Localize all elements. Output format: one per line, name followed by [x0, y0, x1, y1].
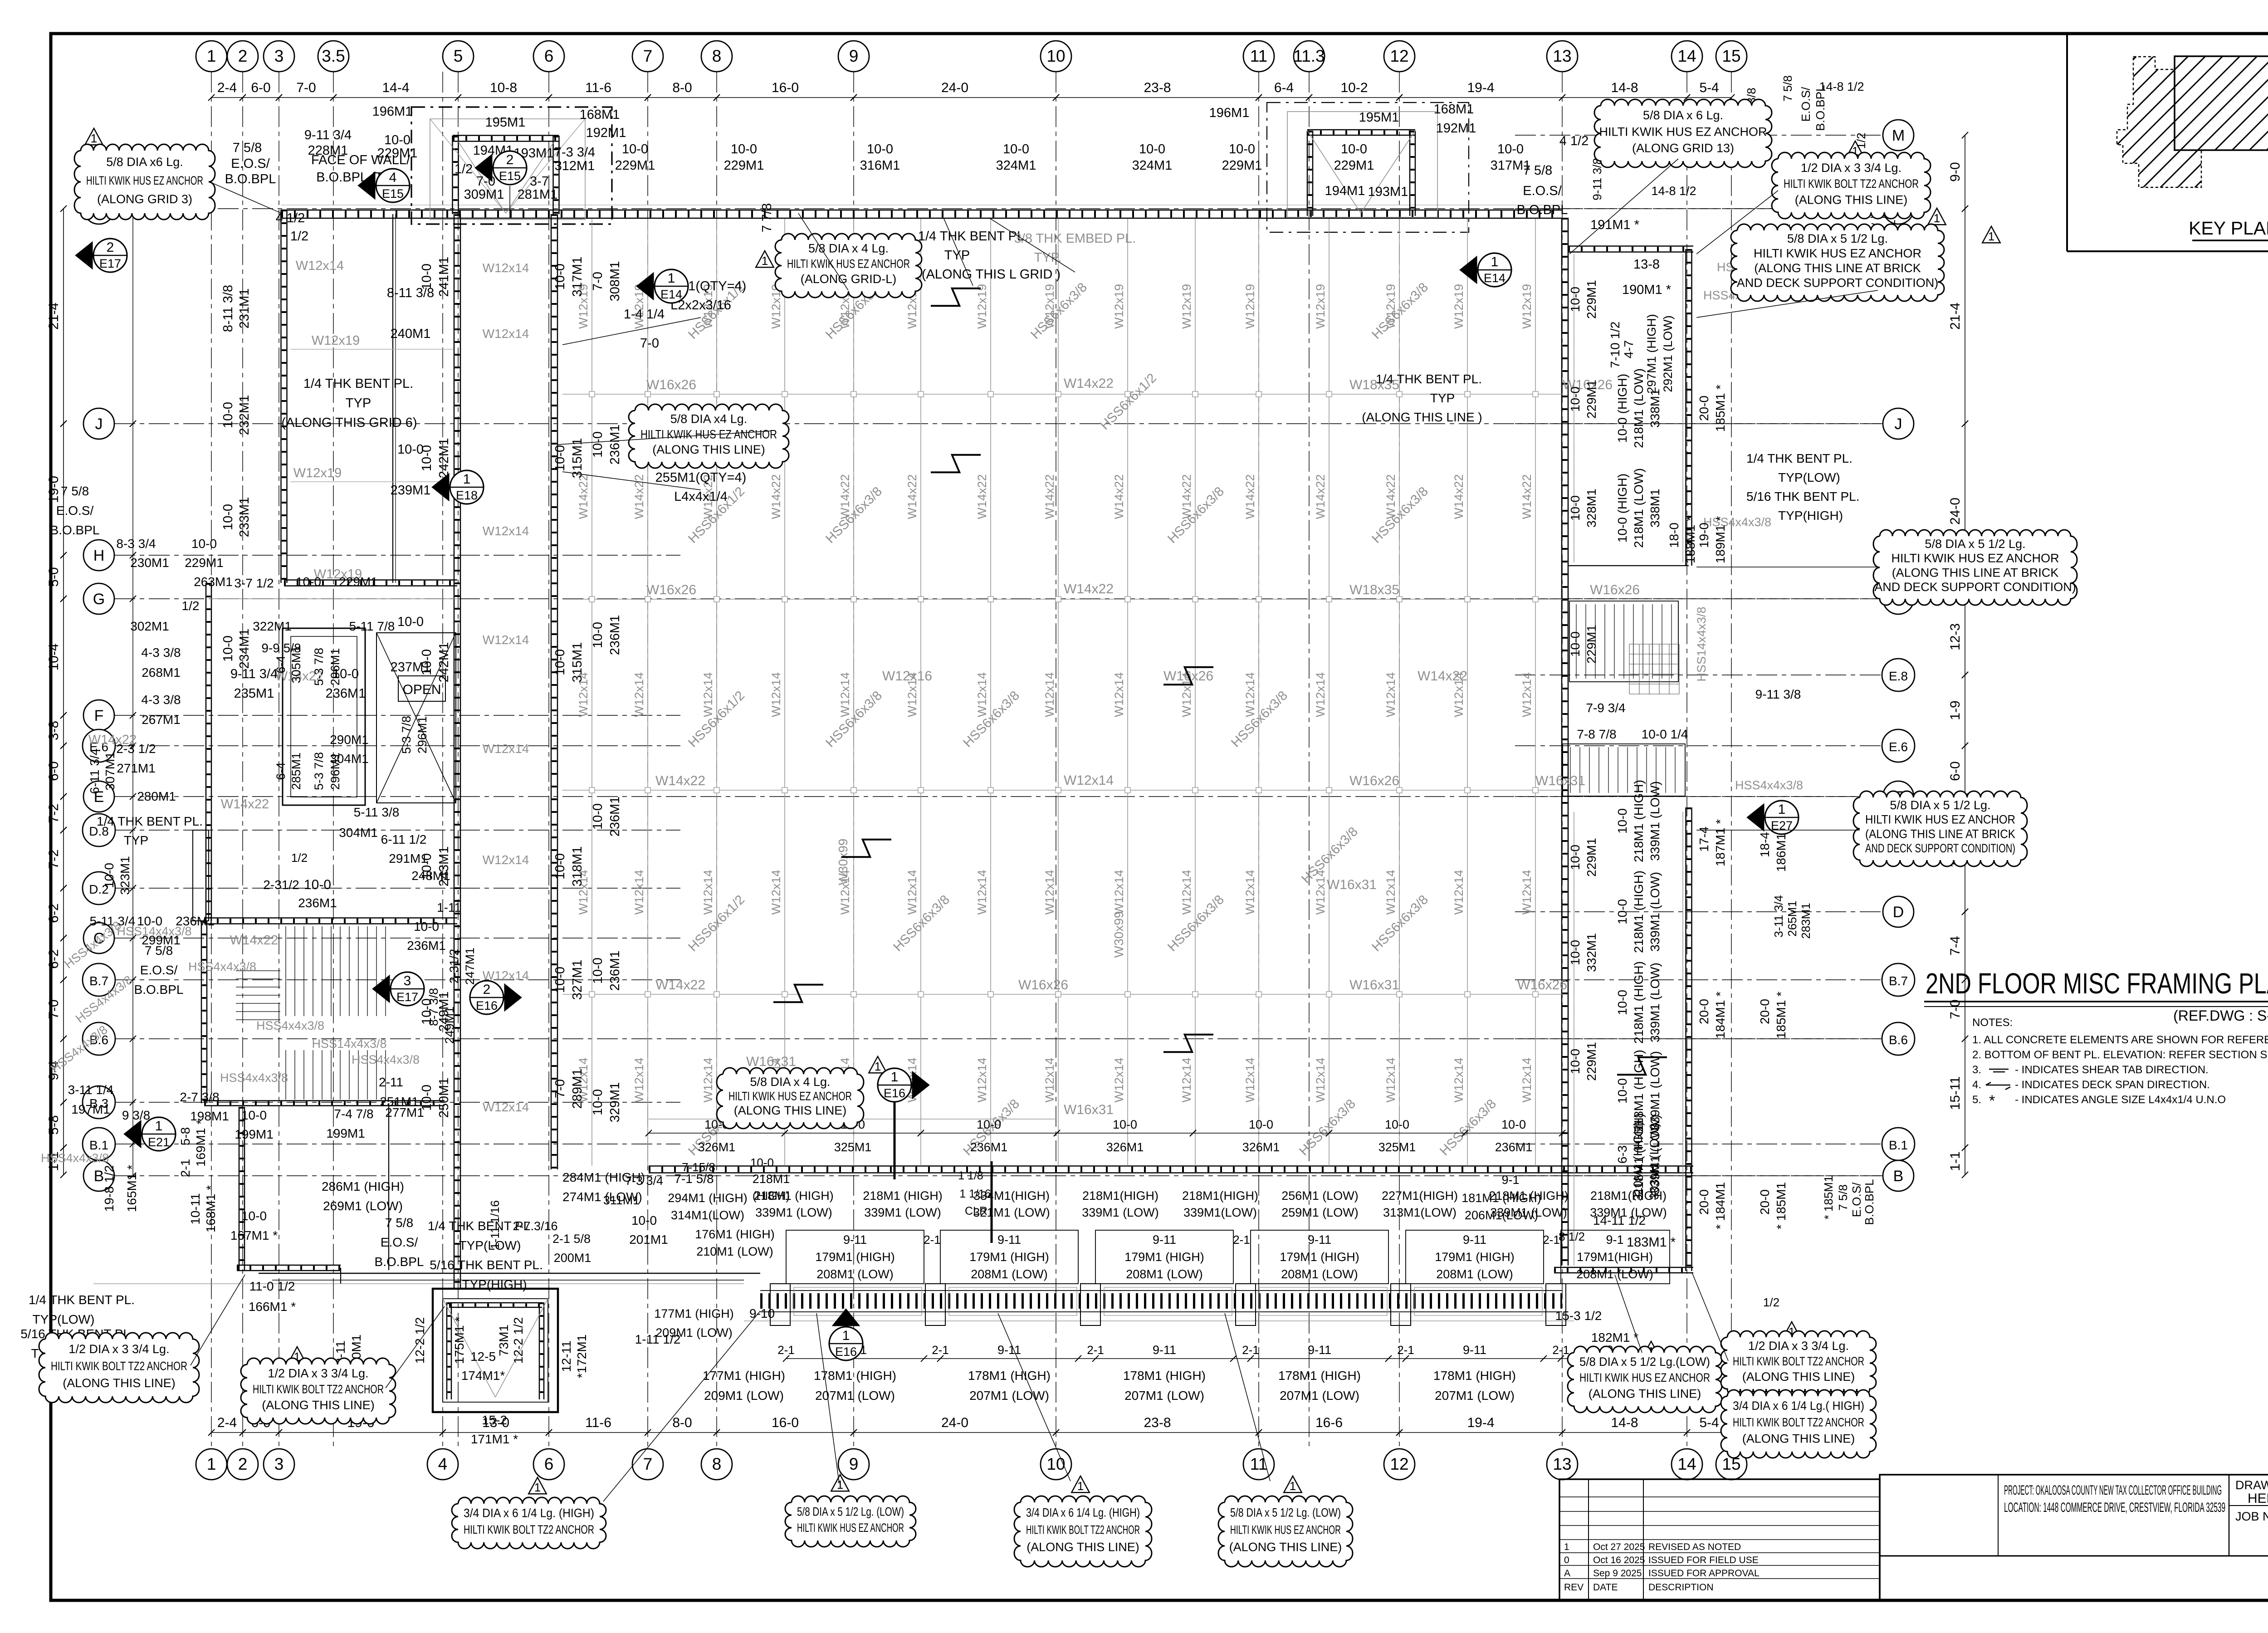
svg-text:2-1: 2-1 [932, 1343, 949, 1357]
svg-text:W12x14: W12x14 [483, 327, 529, 341]
svg-text:DESCRIPTION: DESCRIPTION [1648, 1582, 1714, 1593]
svg-text:1/2 DIA x 3 3/4 Lg.: 1/2 DIA x 3 3/4 Lg. [1801, 161, 1901, 175]
svg-text:236M1: 236M1 [608, 425, 622, 465]
svg-text:TYP.: TYP. [1034, 250, 1062, 265]
svg-text:236M1: 236M1 [1495, 1140, 1533, 1154]
svg-text:328M1: 328M1 [1584, 489, 1598, 528]
svg-text:10-0: 10-0 [191, 537, 217, 551]
svg-text:290M1: 290M1 [330, 733, 369, 747]
svg-text:5/16 THK BENT PL.: 5/16 THK BENT PL. [430, 1258, 543, 1272]
svg-text:2-1: 2-1 [1233, 1233, 1250, 1247]
svg-text:10-0: 10-0 [553, 445, 567, 471]
svg-text:177M1 (HIGH): 177M1 (HIGH) [654, 1307, 734, 1320]
svg-text:W14x22: W14x22 [769, 474, 783, 519]
svg-text:5/16 THK BENT PL.: 5/16 THK BENT PL. [1746, 489, 1860, 504]
svg-text:(ALONG THIS LINE AT BRICK: (ALONG THIS LINE AT BRICK [1892, 566, 2059, 579]
svg-text:*172M1: *172M1 [575, 1335, 589, 1379]
svg-text:W12x14: W12x14 [1180, 870, 1193, 914]
svg-text:HSS14x4x3/8: HSS14x4x3/8 [1695, 606, 1708, 681]
svg-text:20-0: 20-0 [1697, 999, 1711, 1024]
svg-text:1: 1 [891, 1070, 899, 1085]
svg-text:W16x31: W16x31 [1064, 1102, 1114, 1117]
svg-text:1: 1 [155, 1119, 163, 1134]
svg-text:207M1 (LOW): 207M1 (LOW) [1435, 1389, 1515, 1403]
svg-text:W12x14: W12x14 [1520, 870, 1534, 914]
svg-text:1/2: 1/2 [455, 162, 473, 176]
svg-text:13: 13 [1553, 47, 1571, 65]
svg-text:W14x22: W14x22 [221, 797, 269, 812]
svg-text:9-11 3/4: 9-11 3/4 [230, 667, 278, 681]
svg-text:W12x16: W12x16 [882, 669, 932, 684]
svg-text:TYP: TYP [346, 396, 371, 411]
svg-text:196M1: 196M1 [1209, 106, 1250, 120]
svg-text:HSS4x4x3/8: HSS4x4x3/8 [41, 1151, 109, 1165]
svg-text:7-0: 7-0 [591, 272, 605, 291]
svg-text:208M1 (LOW): 208M1 (LOW) [1281, 1267, 1358, 1281]
svg-text:10-0: 10-0 [1229, 142, 1255, 156]
svg-text:303M1 (LOW): 303M1 (LOW) [1647, 1123, 1661, 1200]
svg-text:259M1 (LOW): 259M1 (LOW) [1281, 1206, 1359, 1219]
svg-text:229M1: 229M1 [339, 575, 378, 589]
svg-text:B.7: B.7 [89, 974, 108, 988]
svg-text:10-0: 10-0 [622, 142, 648, 156]
svg-text:315M1: 315M1 [570, 438, 585, 479]
svg-text:218M1 (HIGH): 218M1 (HIGH) [1632, 870, 1646, 953]
svg-text:187M1 *: 187M1 * [1713, 819, 1727, 866]
svg-text:271M1: 271M1 [117, 761, 156, 775]
svg-text:10-0: 10-0 [750, 1156, 774, 1169]
svg-text:HSS4x4x3/8: HSS4x4x3/8 [1735, 778, 1803, 792]
svg-text:W12x19: W12x19 [312, 333, 360, 348]
svg-text:W12x14: W12x14 [1243, 870, 1257, 914]
svg-text:256M1 (LOW): 256M1 (LOW) [1281, 1189, 1359, 1203]
svg-text:175M1 *: 175M1 * [452, 1317, 466, 1364]
svg-text:192M1: 192M1 [1436, 121, 1476, 136]
svg-text:7-15/8: 7-15/8 [682, 1160, 715, 1174]
svg-text:7-2: 7-2 [46, 849, 61, 869]
svg-text:280M1: 280M1 [137, 789, 176, 803]
svg-text:W12x14: W12x14 [905, 870, 919, 914]
svg-text:242M1: 242M1 [437, 642, 451, 683]
svg-text:229M1: 229M1 [724, 158, 764, 173]
svg-text:B.O.BPL: B.O.BPL [1517, 203, 1568, 217]
svg-text:B.7: B.7 [1889, 974, 1908, 988]
svg-text:10-0: 10-0 [384, 133, 411, 147]
svg-text:15: 15 [1722, 47, 1740, 65]
svg-text:W16x26: W16x26 [1517, 978, 1567, 993]
svg-text:208M1 (LOW): 208M1 (LOW) [816, 1267, 894, 1281]
svg-text:10-0: 10-0 [977, 1118, 1001, 1131]
svg-text:6-2: 6-2 [46, 949, 61, 968]
svg-text:1-1: 1-1 [1948, 1151, 1963, 1171]
svg-text:10-0: 10-0 [1501, 1118, 1526, 1131]
svg-text:267M1: 267M1 [142, 713, 181, 727]
svg-text:232M1: 232M1 [237, 395, 252, 435]
svg-text:7-4 7/8: 7-4 7/8 [334, 1107, 373, 1121]
svg-text:171M1 *: 171M1 * [471, 1432, 518, 1446]
svg-text:179M1(HIGH): 179M1(HIGH) [1577, 1250, 1653, 1264]
svg-text:168M1: 168M1 [1434, 102, 1474, 117]
svg-text:W12x14: W12x14 [483, 633, 529, 647]
svg-text:18-0: 18-0 [1667, 523, 1681, 548]
svg-text:178M1 (HIGH): 178M1 (HIGH) [814, 1369, 896, 1383]
svg-text:10-2: 10-2 [1340, 80, 1368, 95]
svg-text:5/8 DIA x4 Lg.: 5/8 DIA x4 Lg. [670, 412, 748, 426]
svg-text:14: 14 [1677, 1455, 1696, 1473]
svg-text:1/4 THK BENT PL.: 1/4 THK BENT PL. [1746, 451, 1853, 465]
svg-text:231M1: 231M1 [237, 288, 252, 329]
svg-text:218M1 (LOW): 218M1 (LOW) [1632, 368, 1646, 448]
svg-text:309M1: 309M1 [464, 187, 504, 202]
svg-text:(ALONG THIS LINE): (ALONG THIS LINE) [1026, 1540, 1139, 1554]
svg-text:3.5: 3.5 [322, 47, 345, 65]
svg-text:W12x14: W12x14 [838, 672, 852, 717]
svg-text:263M1: 263M1 [194, 575, 233, 589]
svg-text:Oct 16 2025: Oct 16 2025 [1593, 1555, 1645, 1565]
svg-text:W12x14: W12x14 [975, 1057, 989, 1102]
svg-text:W12x14: W12x14 [769, 672, 783, 717]
svg-text:316M1: 316M1 [860, 158, 900, 173]
svg-text:W12x19: W12x19 [975, 284, 989, 329]
svg-text:5/8 DIA x 5 1/2 Lg. (LOW): 5/8 DIA x 5 1/2 Lg. (LOW) [797, 1505, 904, 1518]
svg-text:5/8 DIA x 5 1/2 Lg.(LOW): 5/8 DIA x 5 1/2 Lg.(LOW) [1579, 1355, 1710, 1369]
svg-text:296M1: 296M1 [415, 716, 429, 754]
svg-text:(ALONG THIS LINE): (ALONG THIS LINE) [1589, 1387, 1701, 1400]
svg-text:1/4 THK BENT PL.: 1/4 THK BENT PL. [303, 376, 413, 391]
svg-text:4: 4 [389, 170, 397, 185]
svg-text:J: J [95, 416, 103, 433]
svg-text:(ALONG THIS LINE): (ALONG THIS LINE) [1229, 1540, 1342, 1554]
svg-text:HSS4x4x3/8: HSS4x4x3/8 [256, 1019, 324, 1032]
svg-text:7 5/8: 7 5/8 [1836, 1184, 1850, 1211]
svg-text:2. BOTTOM OF BENT PL. ELEVATIO: 2. BOTTOM OF BENT PL. ELEVATION: REFER S… [1972, 1049, 2268, 1061]
svg-text:11-0 1/2: 11-0 1/2 [249, 1279, 295, 1293]
svg-text:2: 2 [107, 240, 114, 255]
svg-text:15-2: 15-2 [482, 1413, 507, 1427]
svg-text:W14x22: W14x22 [1520, 474, 1534, 519]
svg-text:10-0: 10-0 [1615, 808, 1629, 834]
svg-text:W12x14: W12x14 [1384, 1057, 1398, 1102]
svg-text:10-0: 10-0 [591, 622, 605, 648]
svg-text:10-0: 10-0 [1385, 1118, 1409, 1131]
svg-text:234M1: 234M1 [237, 629, 252, 669]
svg-text:10-0: 10-0 [553, 264, 567, 290]
svg-text:DATE: DATE [1593, 1582, 1618, 1593]
svg-text:1: 1 [534, 1481, 541, 1494]
svg-text:218M1 (HIGH): 218M1 (HIGH) [863, 1189, 943, 1203]
svg-text:10-0: 10-0 [553, 649, 567, 675]
svg-text:10-0: 10-0 [304, 877, 331, 892]
svg-text:LOCATION: 1448 COMMERCE DRIVE,: LOCATION: 1448 COMMERCE DRIVE, CRESTVIEW… [2004, 1500, 2225, 1515]
svg-text:315M1: 315M1 [570, 642, 585, 683]
svg-text:L4x4x1/4: L4x4x1/4 [674, 489, 728, 504]
svg-text:E.6: E.6 [1889, 740, 1908, 754]
svg-text:HILTI KWIK HUS EZ ANCHOR: HILTI KWIK HUS EZ ANCHOR [1599, 125, 1767, 138]
svg-text:207M1 (LOW): 207M1 (LOW) [969, 1389, 1049, 1403]
svg-text:9-11: 9-11 [1153, 1343, 1176, 1357]
svg-text:4-3 3/8: 4-3 3/8 [141, 693, 181, 707]
svg-text:W14x22: W14x22 [1452, 474, 1466, 519]
svg-text:10-0 1/4: 10-0 1/4 [1642, 727, 1688, 741]
svg-text:5-3 7/8: 5-3 7/8 [400, 716, 413, 754]
svg-text:321M1 (LOW): 321M1 (LOW) [973, 1206, 1050, 1219]
svg-text:8-7 3/8: 8-7 3/8 [427, 988, 440, 1026]
svg-text:E.O.S/: E.O.S/ [381, 1235, 418, 1249]
svg-text:18-4: 18-4 [1758, 832, 1772, 857]
svg-text:HILTI KWIK HUS EZ ANCHOR: HILTI KWIK HUS EZ ANCHOR [787, 257, 910, 270]
svg-text:12-3: 12-3 [1948, 623, 1963, 650]
svg-text:339M1 (LOW): 339M1 (LOW) [1648, 963, 1662, 1042]
svg-text:M: M [1892, 127, 1905, 144]
svg-text:W12x14: W12x14 [975, 672, 989, 717]
svg-text:6-11 1/2: 6-11 1/2 [381, 832, 427, 846]
svg-text:B.O.BPL: B.O.BPL [50, 523, 100, 537]
svg-text:3/4 DIA x 6 1/4 Lg. (HIGH): 3/4 DIA x 6 1/4 Lg. (HIGH) [1026, 1506, 1140, 1519]
svg-text:W12x14: W12x14 [483, 524, 529, 538]
svg-text:HILTI KWIK HUS EZ ANCHOR: HILTI KWIK HUS EZ ANCHOR [1865, 813, 2015, 826]
svg-text:208M1 (LOW): 208M1 (LOW) [1576, 1267, 1653, 1281]
svg-text:210M1 (LOW): 210M1 (LOW) [696, 1245, 773, 1258]
svg-text:2-1 5/8: 2-1 5/8 [552, 1232, 591, 1246]
svg-text:208M1 (LOW): 208M1 (LOW) [1126, 1267, 1203, 1281]
svg-text:1/2: 1/2 [291, 851, 308, 865]
svg-text:16-0: 16-0 [772, 80, 799, 95]
svg-text:W14x22: W14x22 [1417, 669, 1467, 684]
svg-text:188M1 *: 188M1 * [1683, 516, 1697, 563]
svg-text:E16: E16 [835, 1345, 857, 1359]
svg-text:1-11 1/16: 1-11 1/16 [488, 1200, 502, 1249]
svg-text:7 7/8: 7 7/8 [760, 203, 774, 233]
svg-text:168M1 *: 168M1 * [204, 1185, 218, 1232]
svg-text:247M1: 247M1 [463, 948, 477, 985]
svg-text:206M1(LOW): 206M1(LOW) [1465, 1208, 1538, 1222]
svg-text:REV: REV [1564, 1582, 1584, 1593]
svg-text:10-0: 10-0 [1568, 631, 1582, 657]
svg-text:194M1: 194M1 [1325, 184, 1365, 198]
svg-text:23-8: 23-8 [1144, 1415, 1171, 1430]
svg-text:182M1 *: 182M1 * [1591, 1330, 1638, 1345]
svg-text:179M1 (HIGH): 179M1 (HIGH) [1124, 1250, 1204, 1264]
svg-text:1: 1 [1290, 1479, 1296, 1493]
svg-text:* 184M1: * 184M1 [1713, 1182, 1727, 1229]
svg-text:W14x22: W14x22 [975, 474, 989, 519]
svg-text:5: 5 [454, 47, 463, 65]
svg-text:1. ALL CONCRETE ELEMENTS ARE S: 1. ALL CONCRETE ELEMENTS ARE SHOWN FOR R… [1972, 1034, 2268, 1046]
svg-text:3-8: 3-8 [46, 721, 61, 740]
svg-text:314M1(LOW): 314M1(LOW) [671, 1208, 744, 1222]
svg-text:296M1: 296M1 [328, 648, 342, 686]
svg-text:10-0: 10-0 [1139, 142, 1165, 156]
svg-text:W14x22: W14x22 [905, 474, 919, 519]
svg-text:1: 1 [842, 1328, 850, 1343]
svg-text:E14: E14 [660, 288, 682, 301]
svg-text:24-0: 24-0 [941, 1415, 968, 1430]
svg-text:308M1: 308M1 [608, 261, 622, 302]
svg-text:185M1 *: 185M1 * [1774, 992, 1788, 1039]
svg-text:W12x14: W12x14 [1180, 1057, 1193, 1102]
svg-text:326M1: 326M1 [1242, 1140, 1280, 1154]
svg-text:AND DECK SUPPORT CONDITION): AND DECK SUPPORT CONDITION) [1737, 276, 1939, 290]
svg-text:6: 6 [544, 47, 554, 65]
svg-text:E.O.S/: E.O.S/ [140, 963, 178, 977]
svg-text:233M1: 233M1 [237, 497, 252, 538]
svg-text:7 5/8: 7 5/8 [145, 944, 173, 958]
svg-text:165M1 *: 165M1 * [125, 1165, 139, 1212]
svg-text:8-11 3/8: 8-11 3/8 [221, 285, 235, 332]
svg-text:169M1 *: 169M1 * [194, 1120, 208, 1167]
svg-text:5-4: 5-4 [1699, 1415, 1719, 1430]
svg-text:207M1 (LOW): 207M1 (LOW) [1124, 1389, 1204, 1403]
svg-text:167M1 *: 167M1 * [230, 1228, 278, 1242]
svg-text:Sep 9 2025: Sep 9 2025 [1593, 1568, 1642, 1579]
svg-text:1: 1 [1778, 802, 1786, 817]
svg-text:229M1: 229M1 [377, 146, 418, 161]
svg-text:168M1: 168M1 [580, 108, 620, 122]
svg-text:5-3 7/8: 5-3 7/8 [312, 648, 326, 686]
svg-text:W12x14: W12x14 [483, 1100, 529, 1114]
svg-text:NOTES:: NOTES: [1972, 1017, 2013, 1029]
svg-text:317M1: 317M1 [570, 257, 585, 297]
svg-text:1: 1 [91, 132, 97, 145]
svg-text:W16x31: W16x31 [1535, 773, 1585, 788]
svg-text:1/2 DIA x 3 3/4 Lg.: 1/2 DIA x 3 3/4 Lg. [68, 1342, 169, 1356]
svg-text:REVISED AS NOTED: REVISED AS NOTED [1648, 1542, 1741, 1552]
svg-text:199M1: 199M1 [235, 1127, 274, 1141]
svg-text:23-8: 23-8 [1144, 80, 1171, 95]
svg-text:2-4: 2-4 [217, 1415, 237, 1430]
svg-text:325M1: 325M1 [1378, 1140, 1416, 1154]
svg-text:9-11 3/4: 9-11 3/4 [304, 128, 352, 142]
svg-text:7-10 1/2: 7-10 1/2 [1608, 322, 1622, 368]
svg-text:W12x14: W12x14 [975, 870, 989, 914]
svg-text:5/8 DIA x 6 Lg.: 5/8 DIA x 6 Lg. [1643, 108, 1723, 122]
svg-text:4-7: 4-7 [1622, 340, 1636, 358]
svg-text:E.O.S/: E.O.S/ [56, 504, 94, 518]
svg-text:236M1: 236M1 [608, 797, 622, 837]
svg-text:10-0: 10-0 [241, 1209, 267, 1223]
svg-text:HSS4x4x3/8: HSS4x4x3/8 [188, 960, 256, 973]
svg-text:19-4: 19-4 [1467, 1415, 1494, 1430]
svg-text:1/2 DIA x 3 3/4 Lg.: 1/2 DIA x 3 3/4 Lg. [268, 1367, 368, 1380]
svg-text:2: 2 [238, 1455, 248, 1473]
svg-text:1: 1 [207, 1455, 216, 1473]
svg-text:248M1: 248M1 [411, 869, 450, 883]
svg-text:E.O.S/: E.O.S/ [1523, 184, 1562, 198]
svg-text:1: 1 [837, 1478, 843, 1491]
svg-text:7-0: 7-0 [1948, 999, 1963, 1019]
svg-text:2-1: 2-1 [777, 1343, 795, 1357]
svg-text:19-0: 19-0 [1697, 523, 1711, 548]
svg-text:TYP(HIGH): TYP(HIGH) [462, 1277, 527, 1291]
svg-text:W16x26: W16x26 [646, 377, 696, 392]
svg-text:8: 8 [712, 47, 722, 65]
svg-text:8-0: 8-0 [672, 1415, 692, 1430]
svg-text:E.O.S/: E.O.S/ [231, 156, 270, 171]
svg-text:W12x14: W12x14 [1384, 870, 1398, 914]
svg-text:14-8: 14-8 [1611, 80, 1638, 95]
svg-text:W14x22: W14x22 [1064, 582, 1114, 596]
svg-text:W12x14: W12x14 [1452, 870, 1466, 914]
svg-text:10-0: 10-0 [221, 402, 235, 428]
svg-text:PROJECT: OKALOOSA COUNTY NEW T: PROJECT: OKALOOSA COUNTY NEW TAX COLLECT… [2004, 1483, 2222, 1498]
svg-text:292M1 (LOW): 292M1 (LOW) [1661, 315, 1675, 392]
svg-text:2-31/2: 2-31/2 [447, 949, 461, 984]
svg-text:11-6: 11-6 [585, 80, 611, 95]
svg-text:197M1: 197M1 [71, 1102, 110, 1116]
svg-text:E.O.S/: E.O.S/ [1799, 87, 1813, 122]
svg-text:19-0: 19-0 [46, 476, 61, 503]
svg-text:W30x99: W30x99 [1112, 911, 1126, 958]
svg-text:TYP: TYP [124, 833, 148, 847]
svg-text:334M1(HIGH): 334M1(HIGH) [973, 1189, 1050, 1203]
svg-text:9-1: 9-1 [1606, 1233, 1623, 1247]
svg-text:TYP(LOW): TYP(LOW) [33, 1312, 95, 1326]
svg-text:6-3: 6-3 [1615, 1145, 1629, 1164]
svg-text:10-0: 10-0 [1113, 1118, 1137, 1131]
svg-text:6-2: 6-2 [46, 903, 61, 923]
svg-text:E16: E16 [884, 1086, 905, 1100]
svg-text:9-11: 9-11 [1308, 1233, 1331, 1247]
svg-text:8 1/2: 8 1/2 [1559, 1230, 1585, 1243]
svg-text:W14x22: W14x22 [655, 978, 705, 993]
svg-text:241M1: 241M1 [437, 257, 451, 297]
svg-text:218M1(HIGH): 218M1(HIGH) [1082, 1189, 1158, 1203]
svg-text:10-0: 10-0 [553, 967, 567, 993]
svg-text:(ALONG GRID 13): (ALONG GRID 13) [1632, 142, 1734, 155]
svg-text:10-8: 10-8 [490, 80, 517, 95]
svg-text:HILTI KWIK BOLT TZ2 ANCHOR: HILTI KWIK BOLT TZ2 ANCHOR [1026, 1523, 1140, 1537]
svg-text:7-3 3/4: 7-3 3/4 [625, 1174, 663, 1188]
svg-text:207M1 (LOW): 207M1 (LOW) [1280, 1389, 1359, 1403]
svg-text:294M1 (HIGH): 294M1 (HIGH) [668, 1191, 748, 1205]
svg-text:176M1 (HIGH): 176M1 (HIGH) [695, 1227, 775, 1241]
svg-text:3/8 THK EMBED PL.: 3/8 THK EMBED PL. [1014, 231, 1136, 246]
svg-text:338M1: 338M1 [1648, 389, 1662, 428]
svg-text:H: H [93, 547, 105, 564]
svg-text:3-11 1/4: 3-11 1/4 [68, 1083, 114, 1097]
svg-text:10-0: 10-0 [221, 504, 235, 530]
svg-text:19-4: 19-4 [1467, 80, 1494, 95]
svg-text:1: 1 [875, 1060, 881, 1073]
svg-text:9: 9 [849, 1455, 859, 1473]
svg-text:339M1 (LOW): 339M1 (LOW) [864, 1206, 941, 1219]
svg-text:1/2: 1/2 [1763, 1296, 1779, 1309]
svg-text:10-0: 10-0 [397, 442, 424, 457]
svg-text:0: 0 [1564, 1555, 1569, 1565]
svg-text:(HIGH): (HIGH) [753, 1189, 790, 1203]
svg-text:E17: E17 [396, 990, 418, 1004]
svg-text:10-0: 10-0 [241, 1108, 267, 1122]
svg-text:W16x31: W16x31 [1327, 877, 1377, 892]
svg-text:(ALONG THIS L GRID ): (ALONG THIS L GRID ) [922, 267, 1061, 282]
svg-text:2-4: 2-4 [217, 80, 237, 95]
svg-text:11-6: 11-6 [585, 1415, 611, 1430]
svg-text:178M1 (HIGH): 178M1 (HIGH) [1278, 1369, 1361, 1383]
svg-text:239M1: 239M1 [391, 483, 431, 498]
svg-text:326M1: 326M1 [1106, 1140, 1144, 1154]
svg-text:W16x26: W16x26 [1018, 978, 1068, 993]
svg-text:285M1: 285M1 [289, 753, 303, 790]
svg-text:255M1(QTY=4): 255M1(QTY=4) [655, 470, 747, 485]
svg-text:W14x22: W14x22 [1043, 474, 1056, 519]
svg-text:7 5/8: 7 5/8 [385, 1216, 413, 1230]
svg-text:HILTI KWIK BOLT TZ2 ANCHOR: HILTI KWIK BOLT TZ2 ANCHOR [1733, 1415, 1864, 1429]
svg-text:W14x22: W14x22 [577, 474, 590, 519]
svg-text:DRAWN: DRAWN [2235, 1478, 2268, 1492]
svg-text:7: 7 [643, 47, 653, 65]
svg-text:229M1: 229M1 [1584, 280, 1598, 319]
svg-text:(ALONG THIS LINE): (ALONG THIS LINE) [1742, 1370, 1855, 1384]
